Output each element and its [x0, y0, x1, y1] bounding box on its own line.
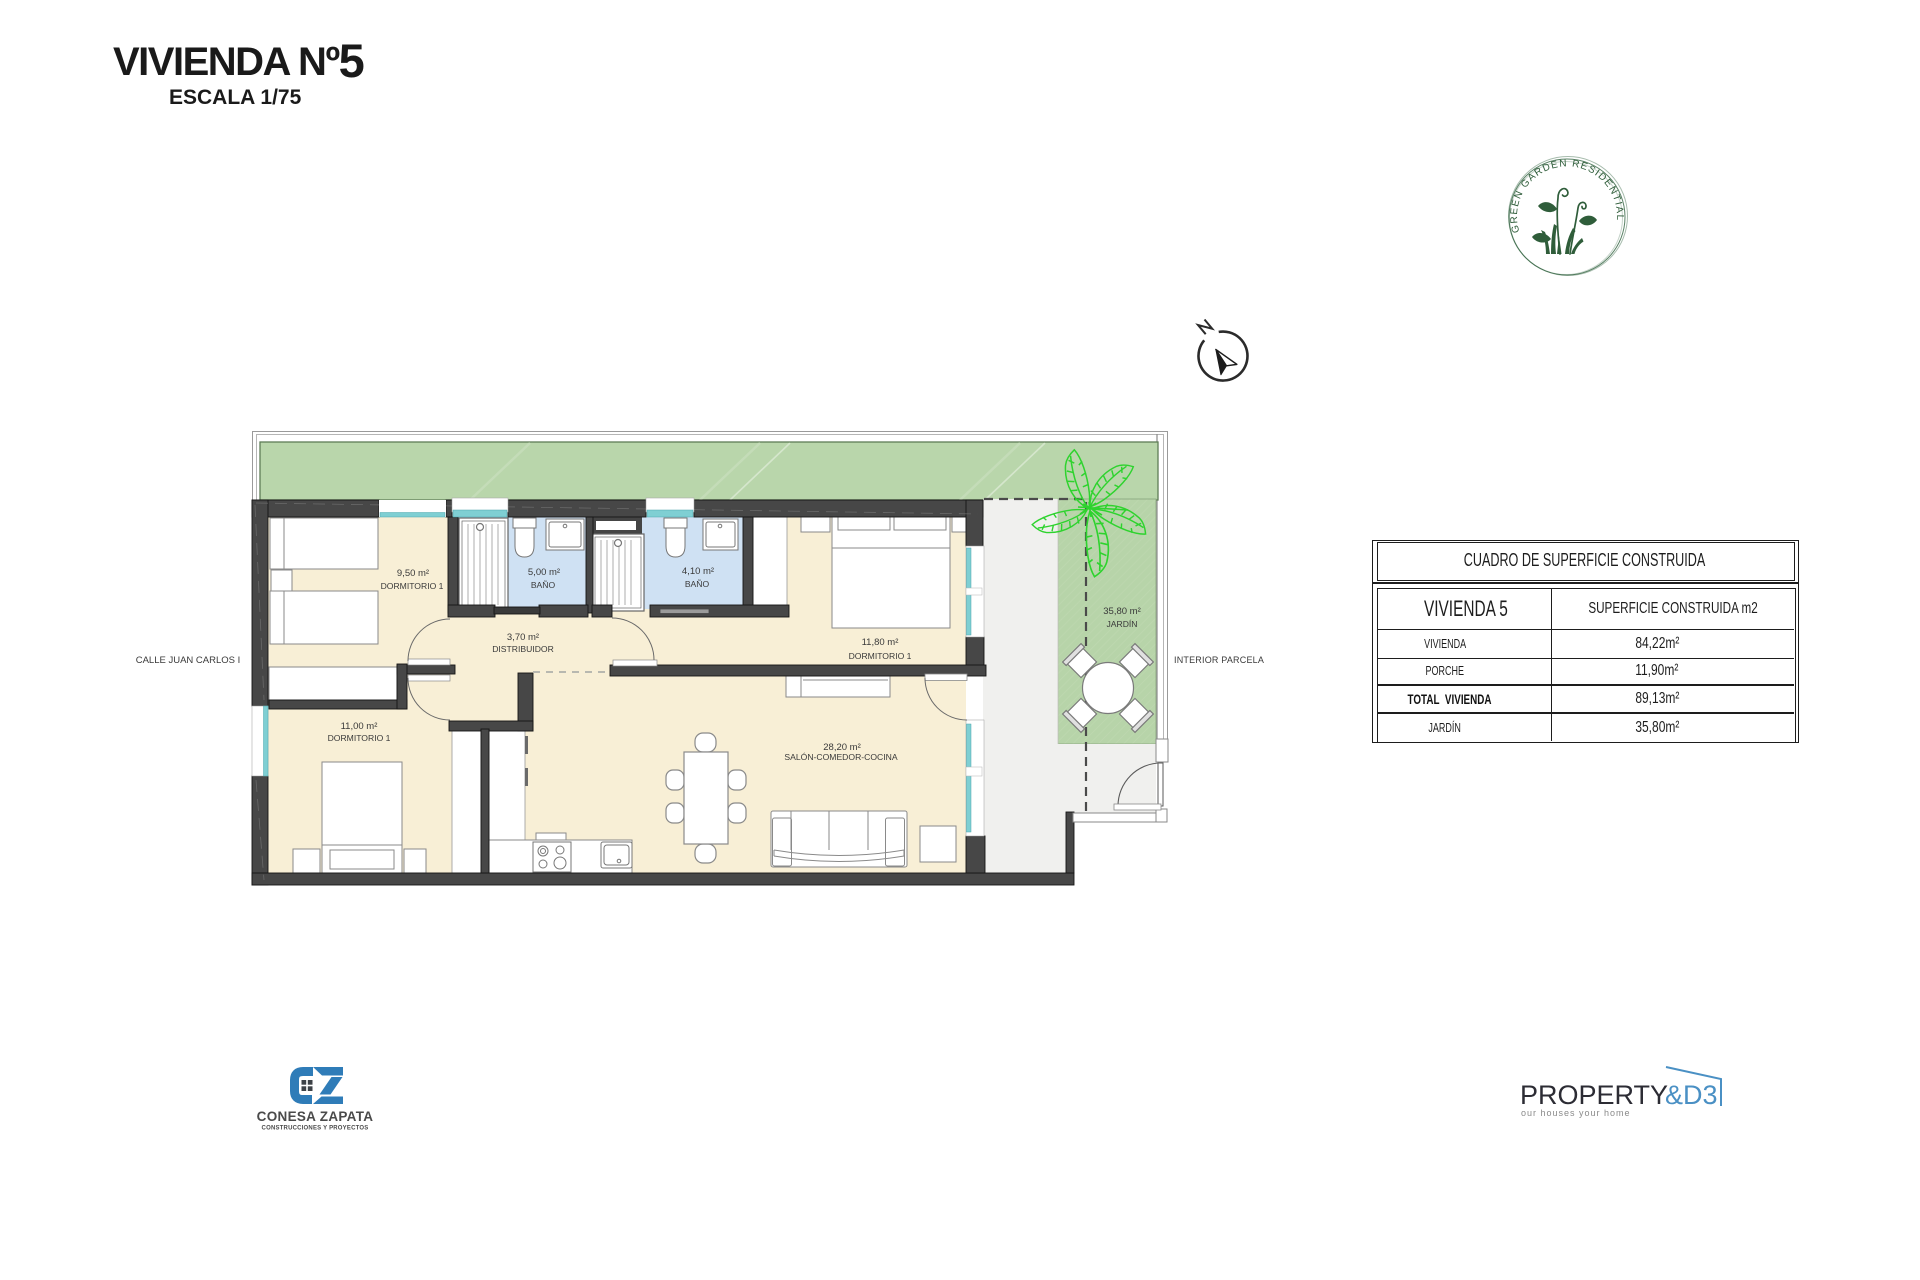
svg-text:4,10 m²: 4,10 m²	[682, 566, 714, 577]
svg-text:BAÑO: BAÑO	[685, 579, 710, 589]
svg-text:9,50 m²: 9,50 m²	[397, 568, 429, 579]
svg-text:5,00 m²: 5,00 m²	[528, 567, 560, 578]
svg-text:DISTRIBUIDOR: DISTRIBUIDOR	[492, 644, 554, 654]
svg-text:3,70 m²: 3,70 m²	[507, 632, 539, 643]
svg-text:SALÓN-COMEDOR-COCINA: SALÓN-COMEDOR-COCINA	[784, 752, 897, 762]
svg-text:JARDÍN: JARDÍN	[1106, 619, 1137, 629]
svg-text:DORMITORIO 1: DORMITORIO 1	[381, 581, 444, 591]
svg-text:DORMITORIO 1: DORMITORIO 1	[849, 651, 912, 661]
svg-text:DORMITORIO 1: DORMITORIO 1	[328, 733, 391, 743]
svg-text:BAÑO: BAÑO	[531, 580, 556, 590]
svg-text:35,80 m²: 35,80 m²	[1103, 606, 1141, 617]
svg-text:11,80 m²: 11,80 m²	[862, 637, 899, 648]
svg-text:11,00 m²: 11,00 m²	[341, 721, 378, 732]
